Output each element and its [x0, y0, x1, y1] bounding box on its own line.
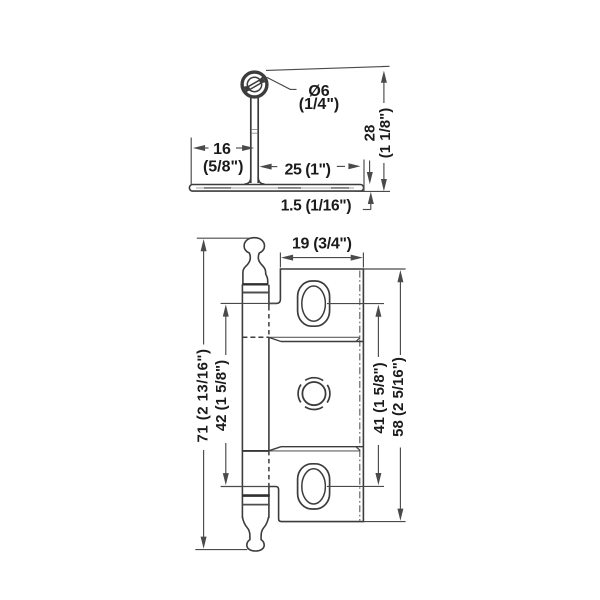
svg-text:16: 16: [213, 141, 231, 158]
svg-text:(1 1/8"): (1 1/8"): [377, 108, 394, 158]
svg-text:1.5 (1/16"): 1.5 (1/16"): [281, 197, 352, 214]
svg-text:41 (1 5/8"): 41 (1 5/8"): [371, 362, 388, 433]
svg-text:19 (3/4"): 19 (3/4"): [292, 236, 352, 253]
svg-text:(5/8"): (5/8"): [203, 159, 243, 176]
svg-text:71 (2 13/16"): 71 (2 13/16"): [195, 349, 212, 443]
svg-text:42 (1 5/8"): 42 (1 5/8"): [213, 360, 230, 431]
svg-text:(1/4"): (1/4"): [299, 96, 339, 113]
svg-text:58 (2 5/16"): 58 (2 5/16"): [390, 357, 407, 437]
svg-text:25 (1"): 25 (1"): [285, 161, 331, 178]
